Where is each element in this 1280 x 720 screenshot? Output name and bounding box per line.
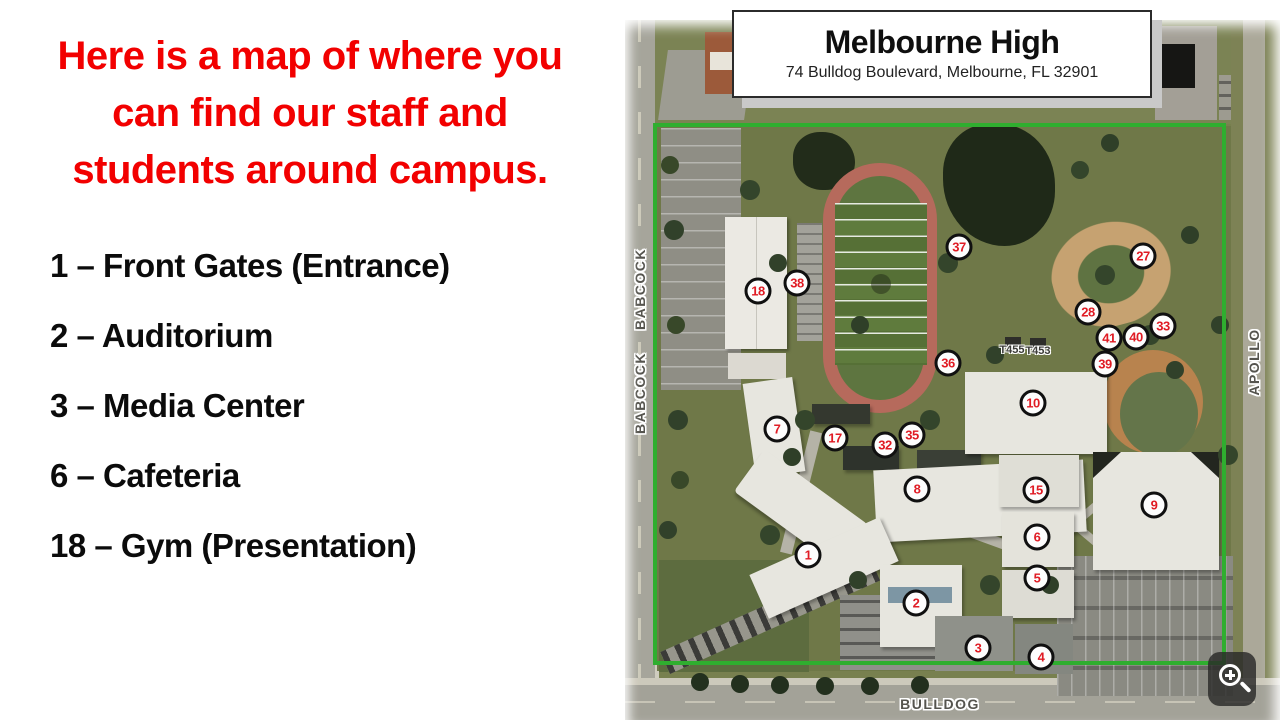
map-marker-38: 38	[784, 270, 811, 297]
slide-heading: Here is a map of where you can find our …	[8, 28, 612, 199]
map-marker-32: 32	[872, 432, 899, 459]
map-marker-33: 33	[1150, 313, 1177, 340]
map-marker-4: 4	[1028, 644, 1055, 671]
campus-satellite-map: BABCOCK BABCOCK APOLLO BULLDOG T455 T453…	[625, 20, 1280, 720]
heading-line-1: Here is a map of where you	[8, 28, 612, 85]
map-marker-36: 36	[935, 350, 962, 377]
map-marker-28: 28	[1075, 299, 1102, 326]
heading-line-2: can find our staff and	[8, 85, 612, 142]
school-name: Melbourne High	[734, 24, 1150, 61]
map-title-box: Melbourne High 74 Bulldog Boulevard, Mel…	[732, 10, 1152, 98]
zoom-button[interactable]	[1208, 652, 1256, 706]
map-marker-15: 15	[1023, 477, 1050, 504]
map-marker-8: 8	[904, 476, 931, 503]
map-marker-6: 6	[1024, 524, 1051, 551]
legend-item-auditorium: 2 – Auditorium	[50, 301, 450, 371]
map-marker-9: 9	[1141, 492, 1168, 519]
legend-item-cafeteria: 6 – Cafeteria	[50, 441, 450, 511]
school-address: 74 Bulldog Boulevard, Melbourne, FL 3290…	[734, 64, 1150, 82]
presentation-slide: Here is a map of where you can find our …	[0, 0, 1280, 720]
map-marker-18: 18	[745, 278, 772, 305]
map-marker-5: 5	[1024, 565, 1051, 592]
map-marker-10: 10	[1020, 390, 1047, 417]
magnifier-handle	[1239, 681, 1251, 693]
map-marker-1: 1	[795, 542, 822, 569]
legend-list: 1 – Front Gates (Entrance) 2 – Auditoriu…	[50, 231, 450, 581]
legend-item-gym: 18 – Gym (Presentation)	[50, 511, 450, 581]
text-panel: Here is a map of where you can find our …	[0, 0, 620, 720]
map-marker-2: 2	[903, 590, 930, 617]
map-marker-27: 27	[1130, 243, 1157, 270]
magnifier-plus-icon	[1219, 664, 1241, 686]
heading-line-3: students around campus.	[8, 142, 612, 199]
map-marker-37: 37	[946, 234, 973, 261]
map-marker-3: 3	[965, 635, 992, 662]
map-marker-41: 41	[1096, 325, 1123, 352]
legend-item-media-center: 3 – Media Center	[50, 371, 450, 441]
map-marker-35: 35	[899, 422, 926, 449]
map-marker-7: 7	[764, 416, 791, 443]
map-marker-39: 39	[1092, 351, 1119, 378]
map-marker-40: 40	[1123, 324, 1150, 351]
markers-layer: 183837272833414039361071732358159651234	[625, 20, 1280, 720]
map-marker-17: 17	[822, 425, 849, 452]
legend-item-front-gates: 1 – Front Gates (Entrance)	[50, 231, 450, 301]
